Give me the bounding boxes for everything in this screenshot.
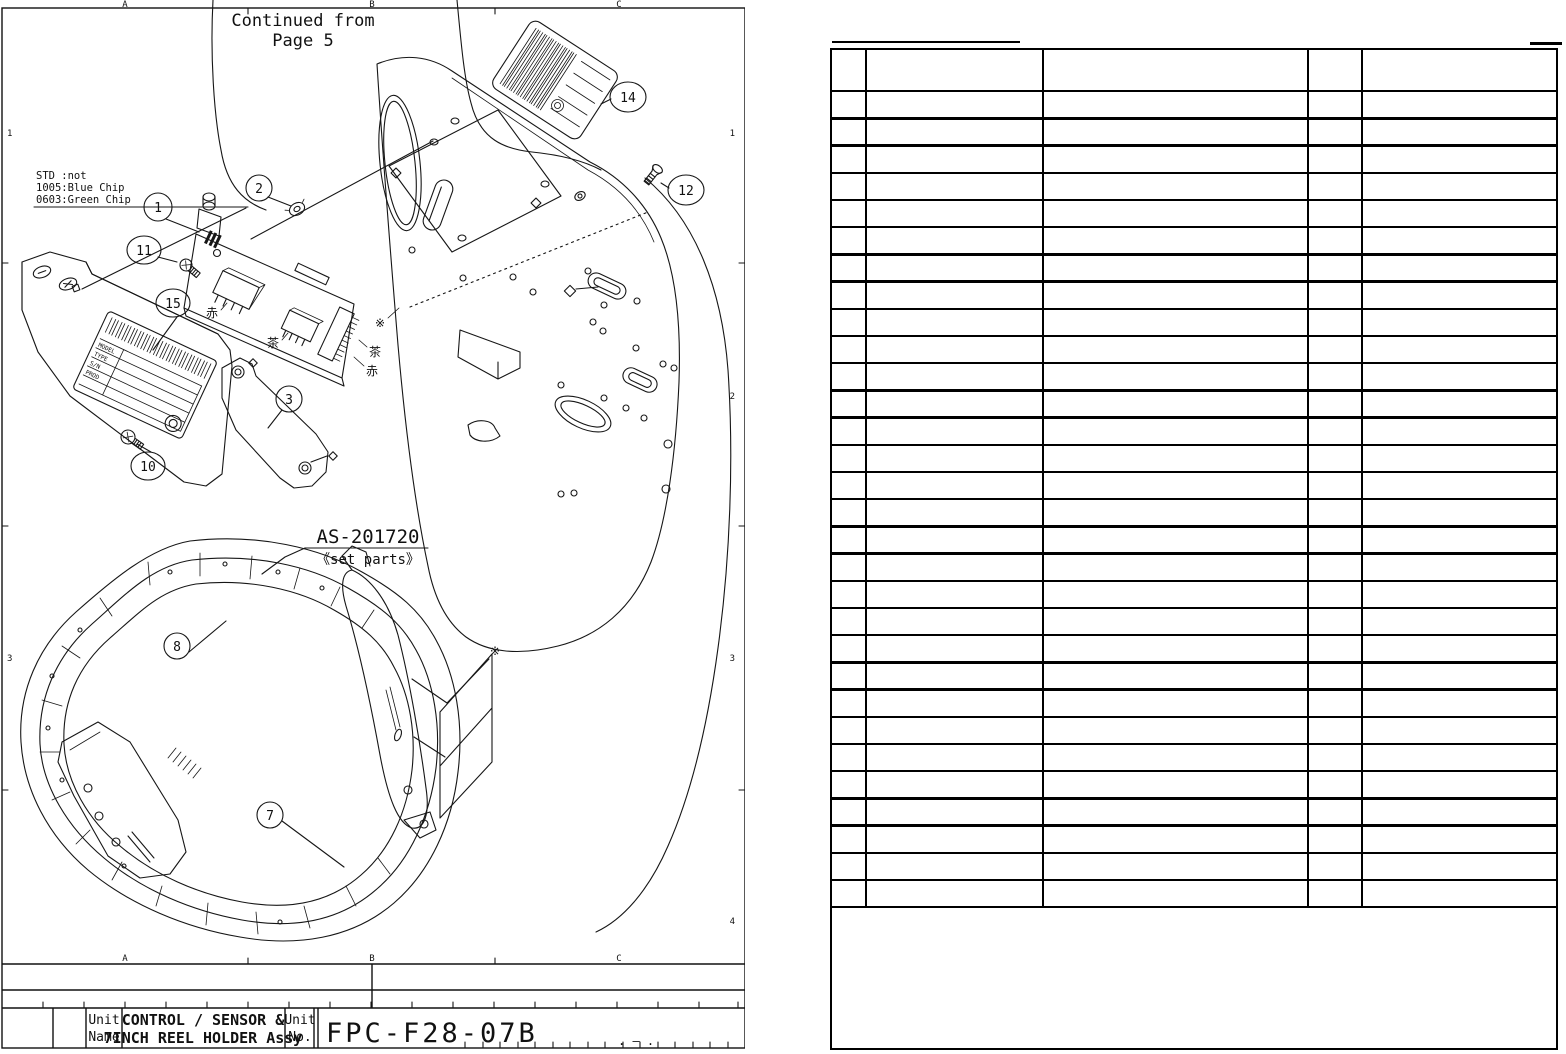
callout-11: 11 <box>127 236 177 264</box>
table-title-underline <box>832 41 1020 43</box>
grid-label-left-3: 3 <box>7 654 12 664</box>
arm-3 <box>222 358 337 488</box>
grid-label-left-1: 1 <box>7 129 12 139</box>
grid-label-top-c: C <box>616 0 621 10</box>
continued-note-line1: Continued from <box>231 11 374 31</box>
callout-14: 14 <box>601 82 646 112</box>
grid-labels: A B C A B C 1 3 1 2 3 4 <box>7 0 735 964</box>
panel-holes <box>409 139 677 497</box>
wire-mark-brown-2: 茶 <box>369 344 381 359</box>
parts-table-row-line <box>832 117 1556 119</box>
screw-10 <box>118 427 146 452</box>
wire-mark-red-2: 赤 <box>366 364 378 378</box>
chip-note-line2: 1005:Blue Chip <box>36 182 125 194</box>
unit-name-line1: CONTROL / SENSOR & <box>122 1011 286 1029</box>
callout-11-label: 11 <box>136 244 152 259</box>
parts-table-row-line <box>832 607 1556 609</box>
callout-10-label: 10 <box>140 460 156 475</box>
wire-mark-red-1: 赤 <box>206 306 218 320</box>
parts-table-row-line <box>832 525 1556 527</box>
parts-table-row-line <box>832 879 1556 881</box>
continued-note-line2: Page 5 <box>272 31 333 51</box>
reference-mark-2: ※ <box>490 644 500 658</box>
table-corner-mark <box>1530 42 1562 45</box>
parts-table-row-line <box>832 389 1556 391</box>
parts-table-row-line <box>832 90 1556 92</box>
reel-ring <box>21 539 492 941</box>
parts-table <box>830 48 1558 1050</box>
ring-latch <box>342 546 436 838</box>
serial-label-14 <box>490 18 621 142</box>
set-parts-note: AS-201720 《set parts》 <box>262 526 428 574</box>
parts-table-row-line <box>832 471 1556 473</box>
wire-marks: 赤 茶 茶 赤 ※ ※ <box>206 303 500 658</box>
nameplate-15: MODEL TYPE S/N PROD <box>72 311 217 440</box>
screw-11 <box>178 257 203 280</box>
parts-table-row-line <box>832 416 1556 418</box>
callout-3-label: 3 <box>285 393 293 408</box>
manual-page: A B C A B C 1 3 1 2 3 4 Continued from P… <box>0 0 1566 1054</box>
grid-label-top-b: B <box>369 0 374 10</box>
parts-table-row-line <box>832 743 1556 745</box>
grid-label-bottom-b: B <box>369 954 374 964</box>
unit-no-suffix: . — . <box>618 1034 654 1048</box>
grid-label-right-4: 4 <box>730 917 735 927</box>
parts-table-row-line <box>832 824 1556 826</box>
torn-edge-curves <box>212 0 731 932</box>
parts-table-column-line <box>1307 50 1309 906</box>
set-parts-caption: 《set parts》 <box>316 552 420 568</box>
callout-14-label: 14 <box>620 91 636 106</box>
parts-table-column-line <box>1361 50 1363 906</box>
callout-7: 7 <box>257 802 344 867</box>
parts-table-row-line <box>832 253 1556 255</box>
chip-note-line1: STD :not <box>36 170 87 182</box>
parts-table-row-line <box>832 580 1556 582</box>
ring-mount-tab <box>58 722 186 878</box>
parts-table-row-line <box>832 852 1556 854</box>
callout-10: 10 <box>131 444 165 480</box>
callout-7-label: 7 <box>266 809 274 824</box>
parts-table-column-line <box>1042 50 1044 906</box>
wire-mark-brown-1: 茶 <box>267 335 279 350</box>
title-block: Unit Name CONTROL / SENSOR & 7INCH REEL … <box>88 1011 654 1049</box>
parts-table-row-line <box>832 362 1556 364</box>
parts-table-row-line <box>832 634 1556 636</box>
grid-label-bottom-c: C <box>616 954 621 964</box>
parts-table-row-line <box>832 797 1556 799</box>
bracket <box>22 250 232 487</box>
callout-8-label: 8 <box>173 640 181 655</box>
parts-table-row-line <box>832 552 1556 554</box>
grid-label-bottom-a: A <box>122 954 128 964</box>
unit-name-line2: 7INCH REEL HOLDER Assy <box>104 1029 303 1047</box>
callout-1: 1 <box>144 193 199 232</box>
pcb-assembly: MODEL TYPE S/N PROD <box>22 193 361 488</box>
reference-mark-1: ※ <box>375 316 385 330</box>
callout-15-label: 15 <box>165 297 181 312</box>
parts-table-row-line <box>832 716 1556 718</box>
parts-table-row-line <box>832 335 1556 337</box>
set-parts-code: AS-201720 <box>317 526 420 548</box>
parts-table-row-line <box>832 661 1556 663</box>
chip-note-line3: 0603:Green Chip <box>36 194 131 206</box>
parts-table-row-line <box>832 906 1556 908</box>
parts-table-row-line <box>832 444 1556 446</box>
grid-label-right-3: 3 <box>730 654 735 664</box>
unit-name-label-line1: Unit <box>88 1013 119 1028</box>
callout-8: 8 <box>164 621 226 659</box>
parts-table-row-line <box>832 280 1556 282</box>
parts-table-row-line <box>832 308 1556 310</box>
ring-band-inner <box>64 582 413 905</box>
barcode <box>500 28 576 109</box>
parts-table-row-line <box>832 144 1556 146</box>
unit-no-value: FPC-F28-07B <box>326 1018 538 1049</box>
parts-table-row-line <box>832 226 1556 228</box>
parts-table-row-line <box>832 172 1556 174</box>
grid-label-right-1: 1 <box>730 129 735 139</box>
parts-table-row-line <box>832 688 1556 690</box>
exploded-view-drawing: A B C A B C 1 3 1 2 3 4 Continued from P… <box>0 0 745 1054</box>
annotations: STD :not 1005:Blue Chip 0603:Green Chip … <box>34 170 500 658</box>
parts-table-row-line <box>832 770 1556 772</box>
callout-1-label: 1 <box>154 201 162 216</box>
parts-table-row-line <box>832 199 1556 201</box>
grid-label-top-a: A <box>122 0 128 10</box>
callout-12-label: 12 <box>678 184 694 199</box>
callout-15: 15 <box>153 289 190 350</box>
unit-no-label-line1: Unit <box>284 1013 315 1028</box>
callout-2: 2 <box>246 175 291 206</box>
parts-table-row-line <box>832 498 1556 500</box>
grid-label-right-2: 2 <box>730 392 735 402</box>
parts-table-column-line <box>865 50 867 906</box>
chip-note: STD :not 1005:Blue Chip 0603:Green Chip <box>34 170 248 289</box>
unit-no-label-line2: No. <box>288 1030 311 1045</box>
continued-note: Continued from Page 5 <box>231 11 374 51</box>
callout-2-label: 2 <box>255 182 263 197</box>
